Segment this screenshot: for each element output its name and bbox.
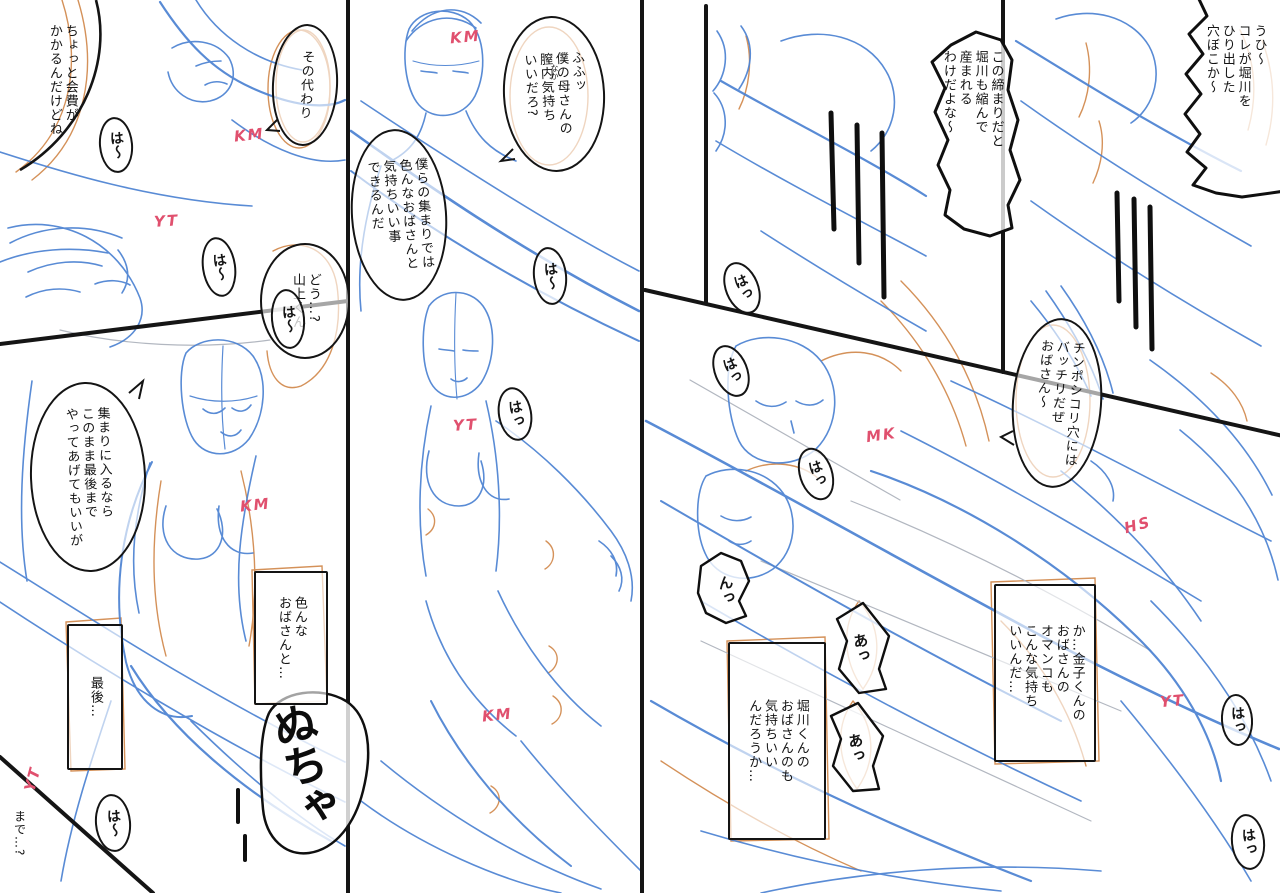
- thought-box-horikawa-text: 堀川くんの おばさんのも 気持ちいい んだろうか…: [745, 699, 808, 783]
- thought-box-ironna-text: 色んな おばさんと…: [275, 596, 307, 680]
- initials-yt-d: YT: [1159, 691, 1186, 711]
- speech-bubble-kaihi-text: ちょっと会費が かかるんだけどね: [46, 24, 78, 196]
- sfx-text: はっ: [804, 458, 829, 490]
- thought-text-made: まで…?: [12, 810, 27, 890]
- initials-km-d: KM: [481, 704, 513, 725]
- sfx-text: は〜: [209, 252, 230, 282]
- thought-box-ironna: 色んな おばさんと…: [254, 571, 328, 705]
- manga-spread: ちょっと会費が かかるんだけどね その代わり どう…? 山上くん 集まりに入るな…: [0, 0, 1280, 893]
- sfx-n-text: んっ: [703, 561, 750, 618]
- thought-box-kaneko-text: か…金子くんの おばさんの オマンコも こんな気持ち いいんだ…: [1005, 624, 1084, 722]
- sfx-text: あっ: [850, 632, 872, 664]
- sfx-text: は〜: [106, 130, 125, 159]
- initials-km-b: KM: [449, 27, 481, 48]
- thought-box-saigo: 最後…: [67, 624, 123, 770]
- initials-yt-b: YT: [452, 415, 478, 435]
- furigana-naka: なか: [549, 64, 560, 80]
- initials-km-c: KM: [239, 494, 271, 515]
- speech-bubble-sonokawari-text: その代わり: [295, 50, 315, 121]
- initials-km-a: KM: [233, 124, 265, 145]
- sfx-text: はっ: [729, 272, 755, 304]
- thought-box-kaneko: か…金子くんの おばさんの オマンコも こんな気持ち いいんだ…: [994, 584, 1096, 762]
- sfx-text: はっ: [1227, 705, 1246, 734]
- sfx-text: は〜: [103, 808, 122, 837]
- initials-yt-a: YT: [153, 211, 179, 231]
- speech-bubble-chinpo-text: チンポシコリ穴には バッチリだぜ おばさん〜: [1029, 338, 1085, 467]
- sfx-text: はっ: [718, 355, 744, 387]
- speech-bubble-uhi-text: うひ〜 コレが堀川を ひり出した 穴ぼこか〜: [1203, 24, 1266, 194]
- speech-bubble-bokura-text: 僕らの集まりでは 色んなおばさんと 気持ちいい事 できるんだ: [363, 157, 434, 273]
- sfx-text: あっ: [845, 732, 867, 764]
- speech-bubble-atsumari-text: 集まりに入るなら このまま最後まで やってあげてもいいが: [62, 406, 114, 548]
- sfx-text: んっ: [715, 574, 737, 606]
- sfx-text: はっ: [504, 399, 526, 430]
- speech-bubble-shimari-text: この締まりだと 堀川も縮んで 産まれる わけだよな〜: [940, 50, 1003, 228]
- thought-box-saigo-text: 最後…: [87, 676, 103, 718]
- sfx-text: は〜: [540, 261, 560, 291]
- sfx-text: はっ: [1238, 827, 1258, 857]
- gray-pencil: [60, 330, 1151, 821]
- thought-box-horikawa: 堀川くんの おばさんのも 気持ちいい んだろうか…: [728, 642, 826, 840]
- sfx-text: は〜: [278, 304, 297, 333]
